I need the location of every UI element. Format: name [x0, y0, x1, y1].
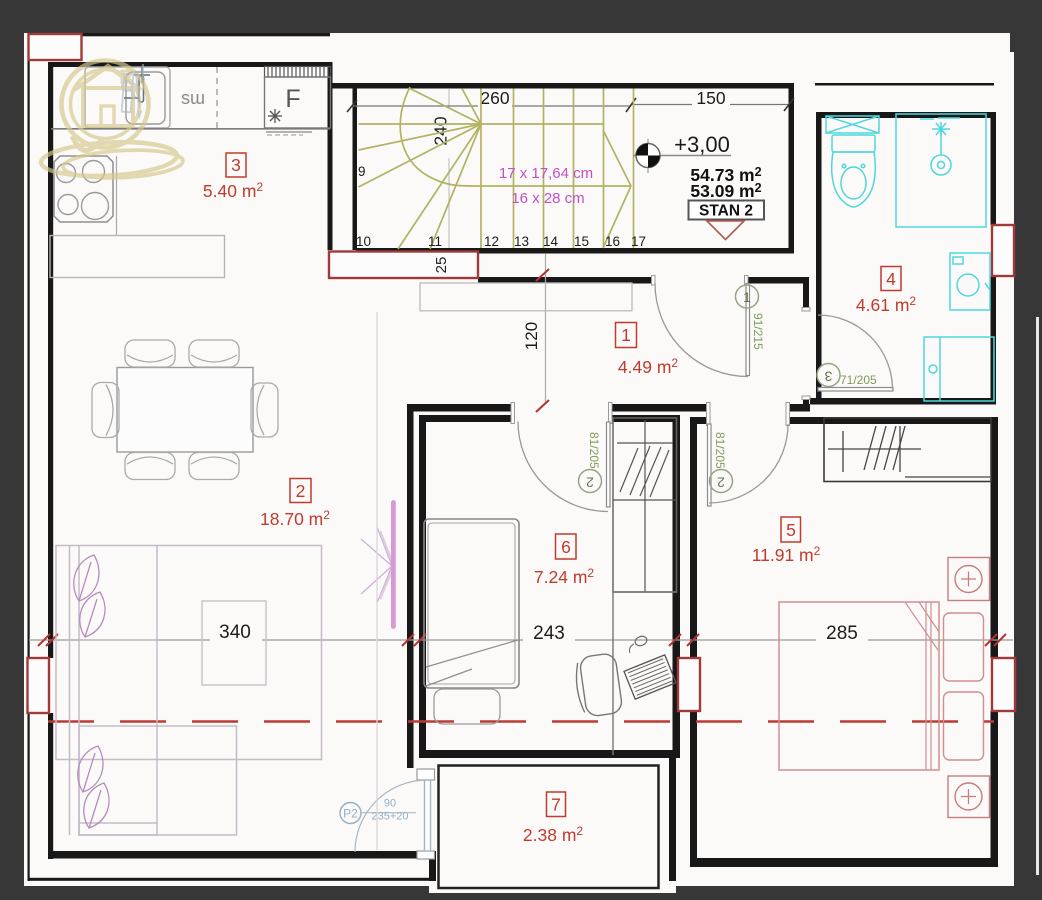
- svg-text:285: 285: [826, 623, 858, 644]
- svg-text:3: 3: [231, 155, 241, 175]
- svg-text:2: 2: [717, 474, 725, 490]
- svg-text:260: 260: [480, 88, 509, 108]
- svg-text:sɯ: sɯ: [181, 88, 205, 108]
- svg-text:18.70 m2: 18.70 m2: [260, 508, 330, 529]
- svg-text:90: 90: [384, 798, 396, 810]
- svg-text:16 x 28 cm: 16 x 28 cm: [511, 190, 584, 207]
- svg-text:3: 3: [824, 368, 832, 384]
- svg-text:10: 10: [356, 234, 371, 249]
- svg-text:16: 16: [605, 234, 620, 249]
- svg-text:1: 1: [621, 325, 631, 345]
- svg-text:6: 6: [561, 537, 571, 557]
- svg-text:12: 12: [484, 234, 499, 249]
- svg-text:150: 150: [696, 88, 725, 108]
- svg-text:1: 1: [743, 289, 751, 305]
- svg-text:+3,00: +3,00: [674, 132, 730, 157]
- svg-text:9: 9: [358, 164, 366, 179]
- svg-text:71/205: 71/205: [840, 373, 877, 387]
- svg-text:15: 15: [574, 234, 589, 249]
- svg-text:17 x 17,64 cm: 17 x 17,64 cm: [499, 165, 593, 182]
- svg-text:243: 243: [533, 623, 565, 644]
- svg-text:13: 13: [514, 234, 529, 249]
- svg-text:5.40 m2: 5.40 m2: [203, 180, 264, 201]
- svg-text:81/205: 81/205: [587, 432, 601, 469]
- svg-text:91/215: 91/215: [751, 313, 765, 350]
- svg-text:25: 25: [433, 257, 450, 274]
- svg-text:F: F: [285, 85, 300, 113]
- svg-text:14: 14: [543, 234, 559, 249]
- svg-text:7.24 m2: 7.24 m2: [534, 566, 595, 587]
- svg-text:11.91 m2: 11.91 m2: [752, 544, 821, 565]
- svg-text:4.61 m2: 4.61 m2: [856, 294, 917, 315]
- svg-text:7: 7: [551, 795, 561, 815]
- svg-text:53.09 m2: 53.09 m2: [690, 181, 761, 201]
- svg-text:120: 120: [522, 322, 541, 350]
- svg-text:4: 4: [886, 269, 896, 289]
- svg-text:81/205: 81/205: [713, 432, 727, 469]
- svg-text:17: 17: [631, 234, 646, 249]
- svg-text:4.49 m2: 4.49 m2: [618, 356, 679, 377]
- svg-text:2.38 m2: 2.38 m2: [523, 824, 584, 845]
- svg-text:STAN 2: STAN 2: [699, 203, 753, 220]
- svg-text:2: 2: [586, 474, 594, 490]
- svg-text:340: 340: [219, 622, 251, 643]
- svg-text:5: 5: [786, 520, 796, 540]
- svg-text:2: 2: [296, 481, 306, 501]
- svg-text:11: 11: [428, 234, 442, 249]
- svg-text:P2: P2: [343, 807, 358, 821]
